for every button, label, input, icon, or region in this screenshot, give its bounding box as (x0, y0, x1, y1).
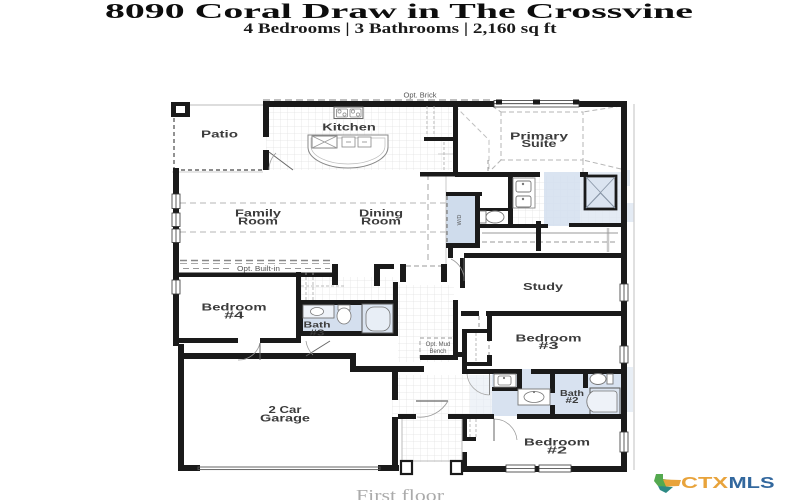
svg-text:Patio: Patio (201, 130, 238, 141)
svg-text:Suite: Suite (522, 139, 558, 150)
svg-text:#2: #2 (566, 396, 580, 405)
svg-text:CTX: CTX (681, 475, 729, 492)
svg-text:#3: #3 (539, 341, 560, 352)
svg-text:Kitchen: Kitchen (322, 123, 376, 134)
svg-text:MLS: MLS (729, 475, 775, 492)
svg-text:Room: Room (361, 217, 401, 228)
svg-text:#3: #3 (310, 328, 325, 338)
svg-text:Study: Study (523, 282, 564, 293)
svg-text:Opt. Mud: Opt. Mud (426, 342, 451, 348)
svg-text:Room: Room (238, 217, 278, 228)
svg-text:4 Bedrooms | 3 Bathrooms | 2,1: 4 Bedrooms | 3 Bathrooms | 2,160 sq ft (244, 21, 557, 37)
svg-text:Garage: Garage (260, 414, 311, 425)
svg-text:Opt. Brick: Opt. Brick (404, 93, 438, 100)
svg-text:Opt. Built-in: Opt. Built-in (237, 266, 280, 273)
svg-text:#4: #4 (224, 311, 244, 322)
svg-text:First floor: First floor (356, 486, 444, 500)
svg-text:#2: #2 (547, 446, 568, 457)
svg-text:W/D: W/D (457, 215, 463, 226)
svg-text:Bench: Bench (429, 349, 446, 355)
svg-text:8090 Coral Draw in The Crossvi: 8090 Coral Draw in The Crossvine (105, 0, 693, 23)
